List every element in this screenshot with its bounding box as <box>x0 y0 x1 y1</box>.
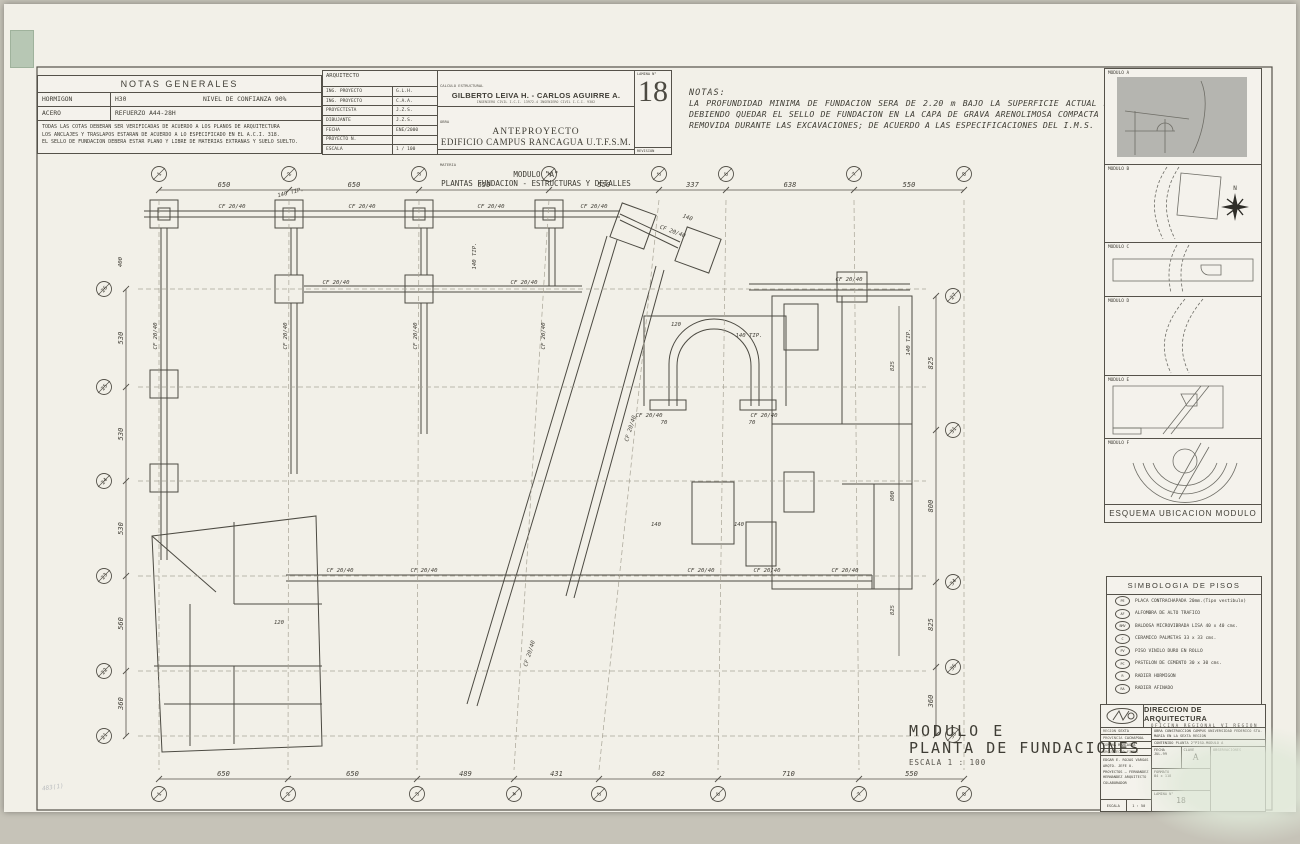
panel-modulo-a: MODULO A <box>1105 69 1261 165</box>
plan-title: MODULO E PLANTA DE FUNDACIONES ESCALA 1 … <box>909 723 1141 767</box>
note-line: TODAS LAS COTAS DEBERAN SER VERIFICADAS … <box>42 124 317 132</box>
grid-bubble-label: 3 <box>414 791 421 797</box>
dimension-note: 140 TIP. <box>736 333 763 339</box>
material-extra: NIVEL DE CONFIANZA 90% <box>199 96 290 103</box>
panel-modulo-c: MODULO C <box>1105 243 1261 297</box>
notes-title: NOTAS: <box>689 88 1157 98</box>
grid-bubble-label: 5 <box>596 791 603 797</box>
grid-bubble-label: 25 <box>100 383 109 392</box>
beam-label: CF 20/40 <box>413 322 419 350</box>
credits-column: ARQUITECTO ING. PROYECTOG.L.H. ING. PROY… <box>323 71 438 154</box>
dimension-note: 70 <box>749 420 756 426</box>
dimension-label: 337 <box>685 181 699 189</box>
grid-bubble-label: 1 <box>156 171 163 177</box>
dimension-note: 70 <box>661 420 668 426</box>
dimension-label: 360 <box>927 695 935 709</box>
north-label: N <box>1233 185 1237 192</box>
material-label: HORMIGON <box>38 93 111 106</box>
calculo-section: CALCULO ESTRUCTURAL GILBERTO LEIVA H. - … <box>438 71 634 107</box>
field-label: ESCALA <box>323 145 393 154</box>
grid-bubble-label: 5 <box>656 171 663 177</box>
panel-label: MODULO E <box>1108 378 1129 383</box>
beam-label: CF 20/40 <box>323 280 351 286</box>
beam-label: CF 20/40 <box>523 639 537 667</box>
beam-label: CF 20/40 <box>219 204 247 210</box>
legend-label: RADIER AFINADO <box>1135 686 1173 691</box>
engineer-credentials: INGENIERO CIVIL I.C.I. 13972-4 INGENIERO… <box>440 100 632 104</box>
dimension-label: 550 <box>903 181 916 189</box>
grid-line <box>854 200 859 770</box>
dimension-note: 825 <box>890 604 896 615</box>
legend-item: PEPLACA CONTRACHAPADA 20mm.(Tipo vestibu… <box>1107 595 1261 608</box>
note-line: EL SELLO DE FUNDACION DEBERA ESTAR PLANO… <box>42 139 317 147</box>
project-column: CALCULO ESTRUCTURAL GILBERTO LEIVA H. - … <box>438 71 635 154</box>
grid-bubble-label: 6 <box>715 791 722 797</box>
table-row: ACERO REFUERZO A44-28H <box>38 107 321 121</box>
sheet-subject: PLANTAS FUNDACION - ESTRUCTURAS Y DETALL… <box>440 179 632 188</box>
modulo-d-sketch <box>1105 297 1261 374</box>
beam-label: CF 20/40 <box>153 322 159 350</box>
escala-label: ESCALA <box>1107 804 1120 808</box>
module-location-schematic: MODULO A MODULO B N <box>1104 68 1262 523</box>
north-compass-icon: N <box>1221 185 1249 221</box>
grid-bubble-label: 23 <box>100 572 109 581</box>
dimension-label: 360 <box>117 697 125 711</box>
beam-label: CF 20/40 <box>624 414 638 442</box>
materia-section: MATERIA MODULO "A" PLANTAS FUNDACION - E… <box>438 150 634 190</box>
dimension-label: 530 <box>117 332 125 345</box>
symbol-bmv: BMV <box>1115 621 1130 631</box>
module-name: MODULO "A" <box>440 170 632 179</box>
dimension-label: 530 <box>117 522 125 535</box>
beam-label: CF 20/40 <box>541 322 547 350</box>
legend-label: ALFOMBRA DE ALTO TRAFICO <box>1135 611 1200 616</box>
dimension-note: 120 <box>274 620 285 626</box>
legend-title: SIMBOLOGIA DE PISOS <box>1107 577 1261 595</box>
grid-bubble-label: 2 <box>286 171 293 177</box>
dimension-label: 825 <box>927 357 935 370</box>
symbol-af: AF <box>1115 609 1130 619</box>
plan-scale: ESCALA 1 : 100 <box>909 758 1141 767</box>
panel-modulo-e: MODULO E <box>1105 376 1261 439</box>
legend-label: PASTELON DE CEMENTO 30 x 30 cms. <box>1135 661 1222 666</box>
grid-bubble-label: 2 <box>285 791 292 797</box>
legend-item: PCPASTELON DE CEMENTO 30 x 30 cms. <box>1107 658 1261 671</box>
beam-label: CF 20/40 <box>511 280 539 286</box>
legend-label: PLACA CONTRACHAPADA 20mm.(Tipo vestibulo… <box>1135 599 1246 604</box>
general-notes-title: NOTAS GENERALES <box>38 76 321 93</box>
field-value: G.L.H. <box>393 89 413 94</box>
panel-label: MODULO B <box>1108 167 1129 172</box>
project-title-block: ARQUITECTO ING. PROYECTOG.L.H. ING. PROY… <box>322 70 672 155</box>
grid-bubble-label: 6 <box>723 171 730 177</box>
dimension-label: 431 <box>550 770 563 778</box>
field-value: J.Z.S. <box>393 108 413 113</box>
plan-name: PLANTA DE FUNDACIONES <box>909 740 1141 757</box>
field-label: PROYECTO N. <box>323 136 393 145</box>
symbol-c: C <box>1115 634 1130 644</box>
dimension-label: 602 <box>652 770 665 778</box>
beam-label: CF 20/40 <box>832 568 860 574</box>
field-label: FECHA <box>323 126 393 135</box>
grid-bubble-label: 8 <box>961 791 968 797</box>
panel-modulo-f: MODULO F <box>1105 439 1261 505</box>
note-line: LOS ANCLAJES Y TRASLAPOS ESTARAN DE ACUE… <box>42 132 317 140</box>
dimension-note: 825 <box>890 360 896 371</box>
dimension-label: 650 <box>218 181 231 189</box>
panel-modulo-b: MODULO B N <box>1105 165 1261 243</box>
dimension-label: 825 <box>927 618 935 631</box>
dimension-label: 550 <box>905 770 918 778</box>
grid-bubble-label: 21 <box>100 732 109 741</box>
dimension-note: 800 <box>890 490 896 501</box>
dimension-label: 489 <box>459 770 472 778</box>
beam-label: CF 20/40 <box>581 204 609 210</box>
dimension-note: 140 <box>682 214 694 223</box>
grid-bubble-label: 36 <box>949 663 958 672</box>
obra-section: OBRA ANTEPROYECTO EDIFICIO CAMPUS RANCAG… <box>438 107 634 150</box>
dimension-label: 530 <box>117 428 125 441</box>
beam-label: CF 20/40 <box>636 413 664 419</box>
engineer-names: GILBERTO LEIVA H. - CARLOS AGUIRRE A. <box>440 91 632 100</box>
grid-bubble-label: 34 <box>949 578 958 587</box>
material-label: ACERO <box>38 107 111 120</box>
grid-bubble-label: 8 <box>961 171 968 177</box>
sheet-number-cell: LAMINA N° 18 REVISION <box>635 71 671 154</box>
grid-bubble-label: 7 <box>851 171 858 177</box>
legend-item: PVPISO VINILO DURO EN ROLLO <box>1107 645 1261 658</box>
dimension-note: 140 TIP. <box>472 243 478 270</box>
dimension-note: 140 <box>651 522 662 528</box>
beam-label: CF 20/40 <box>327 568 355 574</box>
modulo-e-sketch <box>1105 376 1261 437</box>
dimension-label: 650 <box>348 181 361 189</box>
panel-modulo-d: MODULO D <box>1105 297 1261 376</box>
modulo-a-sketch <box>1105 69 1261 163</box>
obra-label: OBRA <box>440 119 449 124</box>
scan-tab-artifact <box>10 30 34 68</box>
project-name: EDIFICIO CAMPUS RANCAGUA U.T.F.S.M. <box>440 137 632 147</box>
grid-bubble-label: 3 <box>416 171 423 177</box>
symbol-ra: RA <box>1115 684 1130 694</box>
project-type: ANTEPROYECTO <box>440 127 632 137</box>
field-label: PROYECTISTA <box>323 106 393 115</box>
legend-item: BMVBALDOSA MICROVIBRADA LISA 40 x 40 cms… <box>1107 620 1261 633</box>
obra-label: OBRA <box>1154 729 1163 733</box>
sheet-number: 18 <box>638 77 668 107</box>
dimension-label: 800 <box>927 500 935 513</box>
grid-bubble-label: 1 <box>156 791 163 797</box>
legend-item: RARADIER AFINADO <box>1107 683 1261 696</box>
material-value: REFUERZO A44-28H <box>111 110 180 117</box>
grid-line <box>599 200 659 770</box>
agency-title: DIRECCION DE ARQUITECTURA <box>1144 705 1265 723</box>
dimension-label: 560 <box>117 617 125 630</box>
legend-item: CCERAMICO PALMETAS 33 x 33 cms. <box>1107 633 1261 646</box>
legend-label: CERAMICO PALMETAS 33 x 33 cms. <box>1135 636 1216 641</box>
general-notes-body: TODAS LAS COTAS DEBERAN SER VERIFICADAS … <box>38 121 321 150</box>
field-value: 1 / 100 <box>393 147 415 152</box>
schematic-caption: ESQUEMA UBICACION MODULO <box>1105 505 1261 522</box>
dimension-label: 638 <box>784 181 797 189</box>
field-label: ING. PROYECTO <box>323 87 393 96</box>
field-label: ING. PROYECTO <box>323 97 393 106</box>
field-label: DIBUJANTE <box>323 116 393 125</box>
symbol-r: R <box>1115 671 1130 681</box>
beam-label: CF 20/40 <box>751 413 779 419</box>
dimension-note: 120 <box>671 322 682 328</box>
beam-label: CF 20/40 <box>836 277 864 283</box>
dimension-label: 650 <box>217 770 230 778</box>
grid-bubble-label: 7 <box>856 791 863 797</box>
materia-label: MATERIA <box>440 162 456 167</box>
table-row: HORMIGON H30 NIVEL DE CONFIANZA 90% <box>38 93 321 107</box>
grid-line <box>288 200 289 770</box>
material-value: H30 <box>111 93 199 106</box>
floor-symbols-legend: SIMBOLOGIA DE PISOS PEPLACA CONTRACHAPAD… <box>1106 576 1262 706</box>
legend-label: PISO VINILO DURO EN ROLLO <box>1135 649 1203 654</box>
legend-label: BALDOSA MICROVIBRADA LISA 40 x 40 cms. <box>1135 624 1238 629</box>
dimension-label: 710 <box>782 770 795 778</box>
field-value: ENE/2000 <box>393 128 418 133</box>
general-notes-table: NOTAS GENERALES HORMIGON H30 NIVEL DE CO… <box>37 75 322 154</box>
foundation-notes: NOTAS: LA PROFUNDIDAD MINIMA DE FUNDACIO… <box>689 88 1157 131</box>
revision-label: REVISION <box>635 147 671 154</box>
grid-bubble-label: 4 <box>511 791 518 798</box>
beam-label: CF 20/40 <box>411 568 439 574</box>
beam-label: CF 20/40 <box>688 568 716 574</box>
legend-label: RADIER HORMIGON <box>1135 674 1176 679</box>
dimension-note: 400 <box>118 256 124 267</box>
panel-label: MODULO C <box>1108 245 1129 250</box>
symbol-pv: PV <box>1115 646 1130 656</box>
beam-label: CF 20/40 <box>478 204 506 210</box>
grid-line <box>718 200 726 770</box>
grid-bubble-label: 24 <box>100 477 109 486</box>
calculo-label: CALCULO ESTRUCTURAL <box>440 83 483 88</box>
grid-bubble-label: 27 <box>949 292 958 301</box>
panel-label: MODULO F <box>1108 441 1129 446</box>
legend-item: RRADIER HORMIGON <box>1107 670 1261 683</box>
panel-label: MODULO D <box>1108 299 1129 304</box>
field-value: C.A.A. <box>393 99 413 104</box>
beam-label: CF 20/40 <box>754 568 782 574</box>
dimension-label: 650 <box>346 770 359 778</box>
panel-label: MODULO A <box>1108 71 1129 76</box>
grid-bubble-label: 22 <box>100 667 109 676</box>
notes-body: LA PROFUNDIDAD MINIMA DE FUNDACION SERA … <box>689 98 1157 131</box>
modulo-f-sketch <box>1105 439 1261 503</box>
beam-label: CF 20/40 <box>349 204 377 210</box>
modulo-b-sketch: N <box>1105 165 1261 241</box>
module-title: MODULO E <box>909 723 1141 740</box>
field-value: J.Z.S. <box>393 118 413 123</box>
drawing-sheet: 6506506505503376385506506504894316027105… <box>4 4 1296 812</box>
symbol-pe: PE <box>1115 596 1130 606</box>
modulo-c-sketch <box>1105 243 1261 295</box>
symbol-pc: PC <box>1115 659 1130 669</box>
beam-label: CF 20/40 <box>659 225 687 240</box>
beam-label: CF 20/40 <box>283 322 289 350</box>
arquitecto-label: ARQUITECTO <box>323 71 437 87</box>
dimension-note: 140 <box>734 522 745 528</box>
legend-item: AFALFOMBRA DE ALTO TRAFICO <box>1107 608 1261 621</box>
grid-bubble-label: 31 <box>949 426 958 435</box>
dimension-note: 140 TIP. <box>906 329 912 356</box>
grid-bubble-label: 26 <box>100 285 109 294</box>
